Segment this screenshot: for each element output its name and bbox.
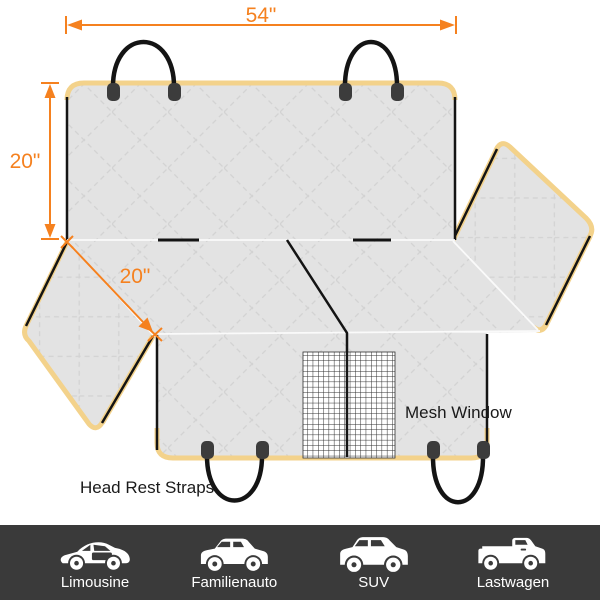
bottom-anchor-straps xyxy=(207,454,483,502)
family-car-icon xyxy=(186,534,282,574)
seat-cover-illustration: 54" 20" 20" Mesh Window Head Rest Straps xyxy=(0,0,600,525)
backrest-panel xyxy=(67,83,455,240)
vehicle-label-familienauto: Familienauto xyxy=(191,575,277,591)
vehicle-item-limousine: Limousine xyxy=(40,534,150,591)
flap-dimension-label: 20" xyxy=(120,265,151,288)
suv-car-icon xyxy=(326,534,422,574)
anchor-strap-loop xyxy=(207,454,262,501)
height-dimension-label: 20" xyxy=(10,150,41,173)
head-rest-straps-label: Head Rest Straps xyxy=(80,478,214,497)
anchor-strap-loop xyxy=(433,455,483,502)
mesh-window-label: Mesh Window xyxy=(405,403,512,422)
vehicle-label-suv: SUV xyxy=(358,575,389,591)
vehicle-label-limousine: Limousine xyxy=(61,575,129,591)
width-dimension-label: 54" xyxy=(246,4,277,27)
vehicle-item-suv: SUV xyxy=(319,534,429,591)
vehicle-item-familienauto: Familienauto xyxy=(179,534,289,591)
vehicle-label-lastwagen: Lastwagen xyxy=(477,575,550,591)
seat-cover-product-diagram: 54" 20" 20" Mesh Window Head Rest Straps xyxy=(0,0,600,600)
vehicle-compatibility-bar: Limousine Familienauto xyxy=(0,525,600,600)
pickup-truck-icon xyxy=(465,534,561,574)
mesh-window xyxy=(303,352,395,458)
vehicle-item-lastwagen: Lastwagen xyxy=(458,534,568,591)
height-dimension xyxy=(41,83,59,239)
sedan-car-icon xyxy=(47,534,143,574)
